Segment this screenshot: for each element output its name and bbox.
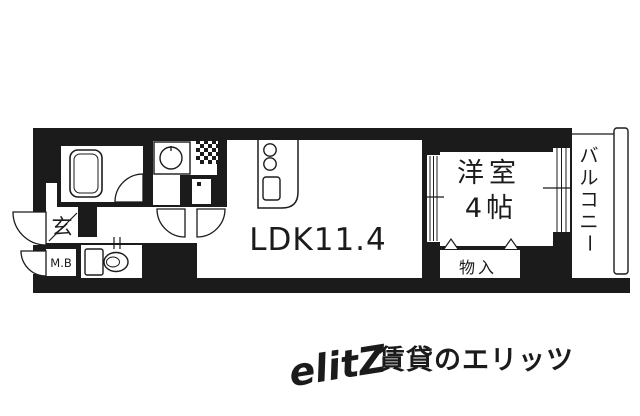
entrance-label: 玄: [52, 215, 73, 239]
entrance-wall-chunk: [78, 207, 97, 237]
balcony-char: ニ: [579, 211, 598, 233]
balcony-char: ー: [578, 233, 600, 252]
watermark-logo: elitZ: [286, 336, 391, 395]
balcony-label: バ ル コ ニ ー: [578, 145, 600, 253]
watermark: elitZ 賃貸のエリッツ: [286, 336, 574, 395]
bottom-wall: [33, 278, 630, 293]
watermark-caption: 賃貸のエリッツ: [377, 344, 574, 376]
washing-machine-area: [196, 141, 218, 164]
meter-box-door-arc: [21, 251, 46, 276]
balcony-char: ル: [579, 167, 598, 189]
floor-plan: LDK11.4 洋室 4帖 物入 玄 M.B バ ル コ ニ ー elitZ 賃…: [0, 0, 640, 416]
balcony-railing: [614, 128, 628, 274]
western-room-name-label: 洋室: [457, 158, 521, 189]
western-room-size-label: 4帖: [465, 193, 517, 224]
pipe-space: [192, 179, 211, 204]
kitchen-counter: [258, 140, 298, 208]
washbasin-icon: [154, 142, 190, 174]
floor-plan-page: LDK11.4 洋室 4帖 物入 玄 M.B バ ル コ ニ ー elitZ 賃…: [0, 0, 640, 416]
pipe-space-dot: [197, 182, 201, 186]
balcony-char: バ: [579, 145, 598, 167]
entrance-door-arc: [13, 212, 46, 245]
ldk-label: LDK11.4: [249, 222, 387, 258]
meter-box-label: M.B: [50, 256, 72, 270]
entrance-niche: [46, 183, 57, 207]
balcony-char: コ: [579, 189, 598, 211]
closet-label: 物入: [459, 258, 497, 277]
bathtub-icon: [70, 150, 102, 197]
